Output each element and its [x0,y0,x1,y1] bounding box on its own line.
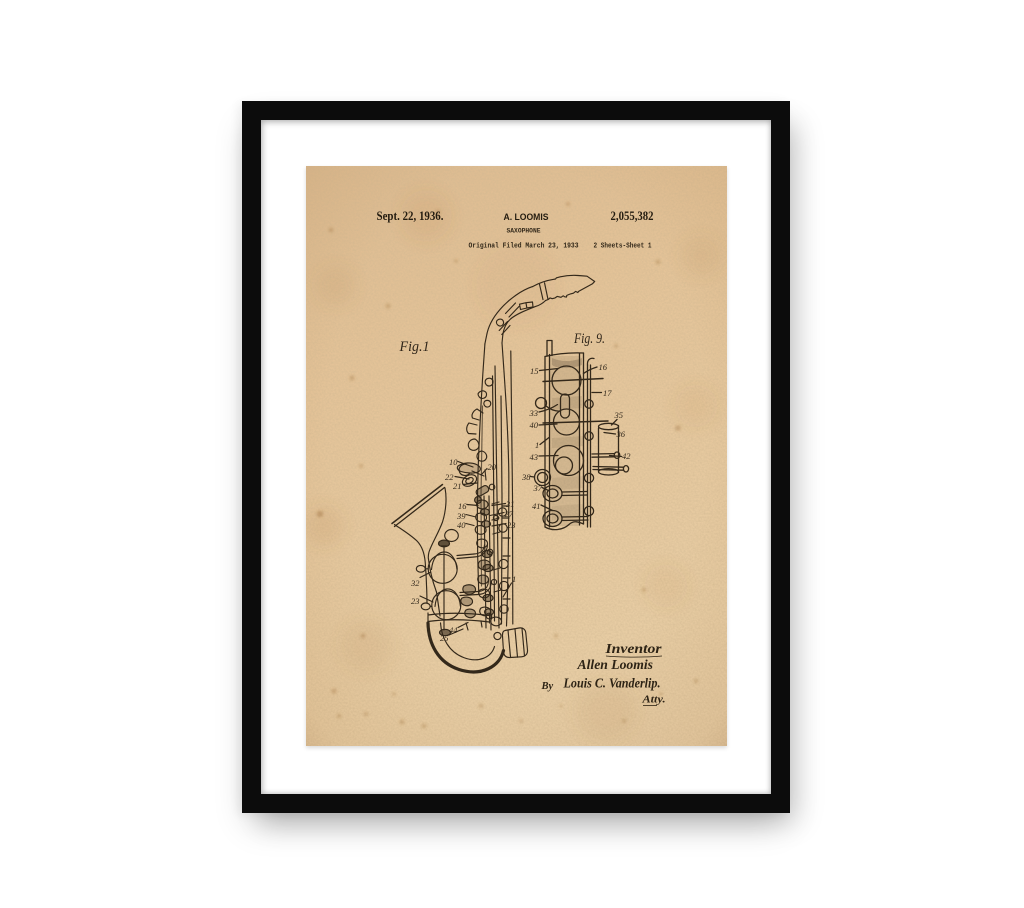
svg-text:32: 32 [410,578,420,588]
svg-text:40: 40 [457,520,466,530]
svg-text:10: 10 [449,457,458,467]
svg-text:Sept. 22, 1936.: Sept. 22, 1936. [377,209,444,223]
svg-text:27: 27 [505,509,514,519]
svg-text:Fig. 9.: Fig. 9. [573,331,605,347]
svg-text:2 Sheets-Sheet 1: 2 Sheets-Sheet 1 [594,243,652,251]
svg-text:40: 40 [530,420,539,430]
svg-text:Allen Loomis: Allen Loomis [576,657,653,672]
svg-text:42: 42 [622,451,631,461]
svg-text:SAXOPHONE: SAXOPHONE [507,228,541,235]
svg-text:21: 21 [453,481,462,491]
svg-text:36: 36 [616,429,626,439]
svg-text:Louis C. Vanderlip.: Louis C. Vanderlip. [563,676,661,691]
svg-text:37: 37 [533,483,543,493]
svg-text:Inventor: Inventor [604,641,662,656]
svg-text:16: 16 [599,362,608,372]
svg-text:25: 25 [440,633,449,643]
svg-text:Atty.: Atty. [641,695,665,706]
svg-text:2,055,382: 2,055,382 [611,209,654,223]
svg-text:16: 16 [458,501,467,511]
svg-text:33: 33 [529,408,539,418]
svg-text:44: 44 [449,625,458,635]
svg-text:A. LOOMIS: A. LOOMIS [504,212,549,222]
svg-text:1: 1 [512,574,516,584]
svg-text:By: By [541,681,554,692]
svg-text:Fig.1: Fig.1 [399,339,430,355]
svg-text:23: 23 [411,596,420,606]
svg-text:17: 17 [603,388,612,398]
svg-text:1: 1 [535,440,539,450]
svg-text:23: 23 [507,520,516,530]
svg-text:43: 43 [530,452,539,462]
svg-text:38: 38 [521,472,531,482]
svg-text:15: 15 [530,366,539,376]
svg-text:20: 20 [488,462,497,472]
svg-text:Original Filed March 23, 1933: Original Filed March 23, 1933 [469,243,579,251]
svg-text:41: 41 [532,501,541,511]
svg-text:35: 35 [614,410,624,420]
svg-text:31: 31 [505,499,515,509]
